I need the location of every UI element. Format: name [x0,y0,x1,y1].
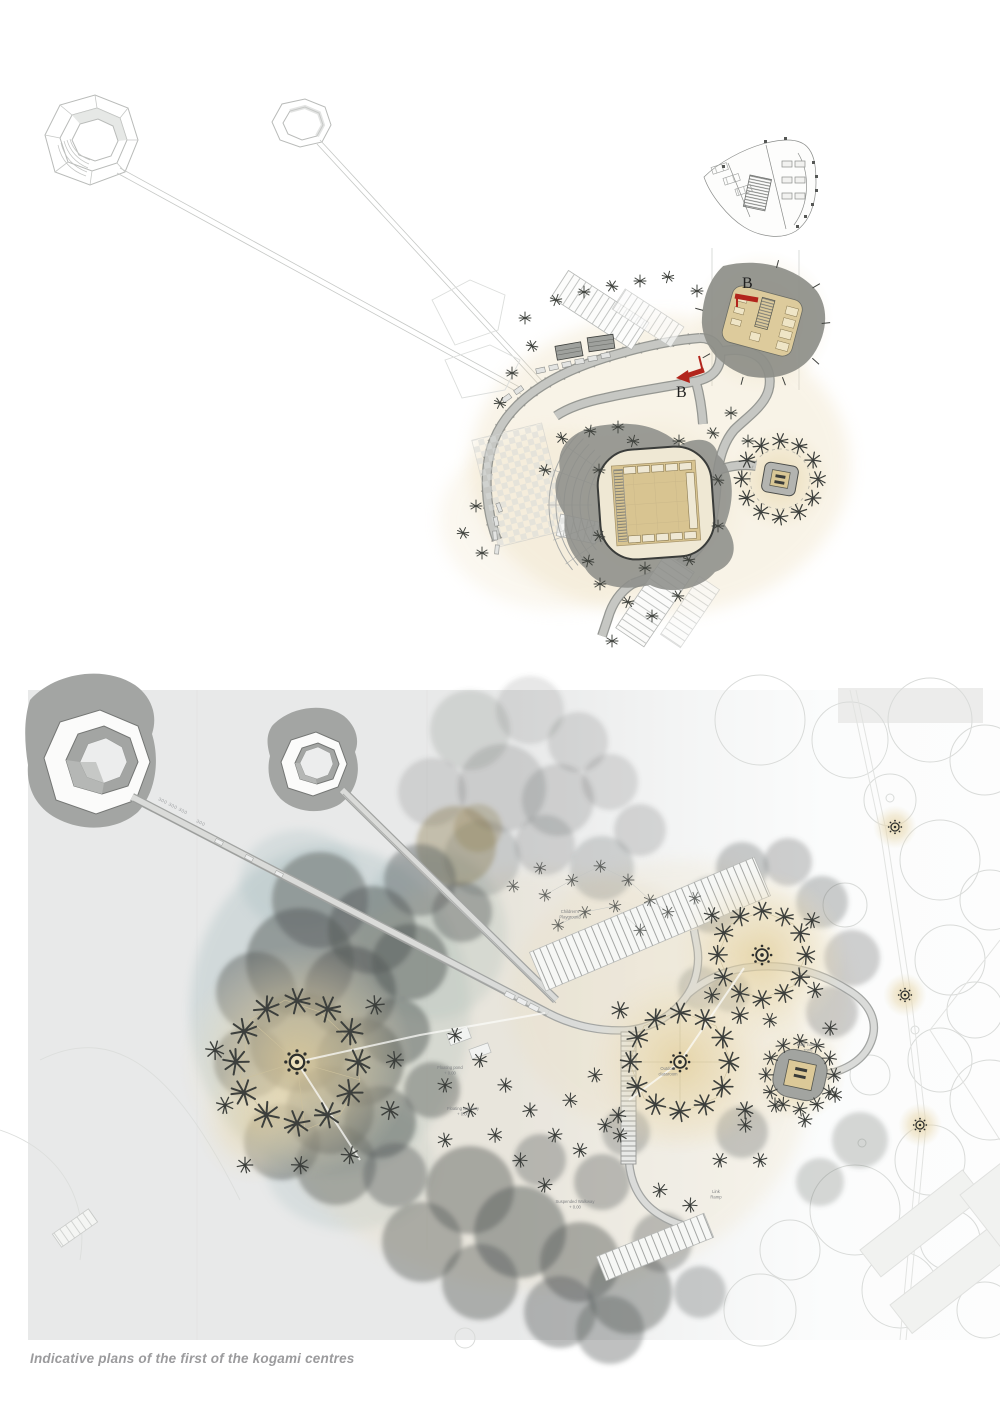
label-playground-1: Children's [561,909,580,914]
tower-b-plan [272,99,331,147]
site-plans-drawing: B B [0,0,1000,1405]
label-suspended-2: + 0.00 [569,1205,581,1210]
label-pond-2: + 0.00 [444,1071,456,1076]
caption: Indicative plans of the first of the kog… [30,1351,355,1366]
detail-floor-plan [704,137,818,236]
label-link-1: Link [712,1189,721,1194]
label-nature-1: Kids' nature [797,1042,820,1047]
label-link-2: Ramp [710,1195,722,1200]
label-classroom-2: classroom [658,1072,678,1077]
label-pond-1: Floating pond [437,1065,463,1070]
label-playground-2: Playground [559,915,581,920]
label-nature-2: zone [803,1048,813,1053]
tower-a-plan [45,95,138,185]
label-fwalk-1: Floating walkway [447,1106,480,1111]
poster-page: B B [0,0,1000,1405]
walkway-line-a [117,168,523,394]
bottom-site-plan: 300 300 300 300 [0,674,1000,1364]
section-label-b2: B [676,384,687,401]
label-classroom-1: Outdoor [660,1066,676,1071]
label-fwalk-2: + 0.00 [457,1112,469,1117]
walkway-line-b [317,140,544,388]
top-site-plan: B B [45,95,850,648]
tower-a-rendered [25,674,156,828]
section-label-b1: B [742,275,753,292]
label-suspended-1: Suspended Walkway [556,1199,596,1204]
